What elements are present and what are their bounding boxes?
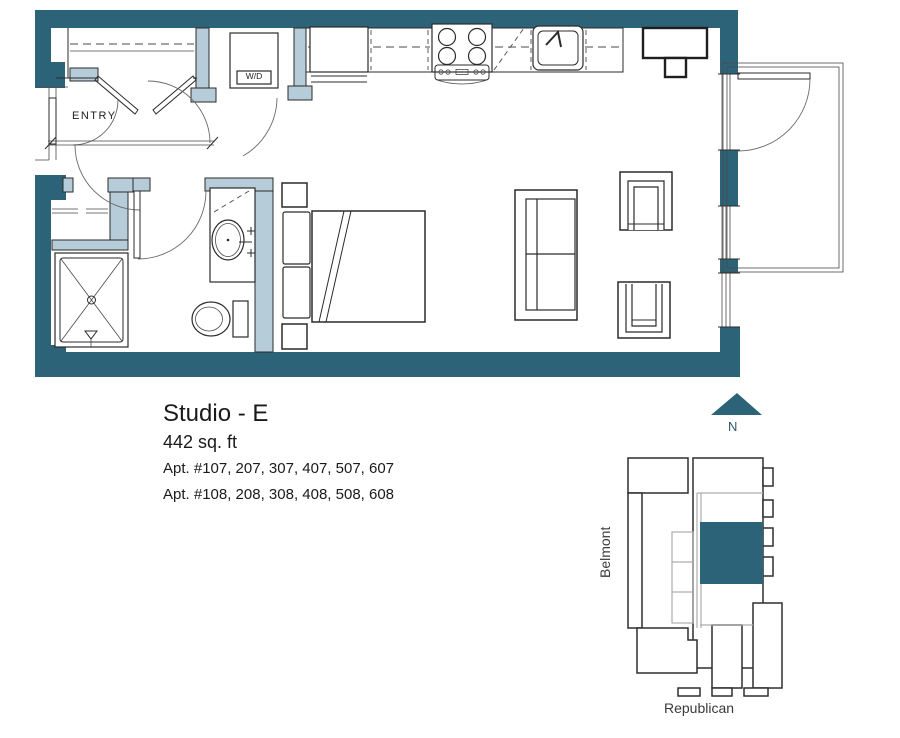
refrigerator: [310, 27, 368, 82]
north-arrow-icon: [711, 393, 762, 415]
north-label: N: [728, 419, 737, 434]
bathroom-door-leaf: [134, 191, 140, 258]
living-area: [515, 28, 707, 338]
wd-door-swing: [243, 98, 277, 156]
bed-area: [282, 183, 425, 349]
vanity-sink: [210, 188, 255, 282]
linen-closet: [52, 209, 108, 213]
bed-mattress: [312, 211, 425, 322]
stove: [432, 24, 492, 84]
north-arrow: [711, 393, 762, 415]
plan-title: Studio - E: [163, 400, 268, 428]
bathroom: [134, 188, 255, 337]
floor-plan-page: { "plan": { "title": "Studio - E", "area…: [0, 0, 900, 738]
dishwasher: [494, 28, 524, 70]
washer-dryer-label: W/D: [238, 71, 270, 81]
highlighted-unit: [700, 522, 763, 584]
plan-area: 442 sq. ft: [163, 432, 237, 453]
pillow: [283, 212, 310, 264]
floor-plan-svg: [0, 0, 900, 738]
bifold-door-left: [95, 76, 138, 114]
washer-dryer-closet: [230, 33, 278, 156]
table-with-stool: [643, 28, 707, 77]
apartment-numbers-1: Apt. #107, 207, 307, 407, 507, 607: [163, 460, 394, 477]
nightstand: [282, 324, 307, 349]
kitchen-sink: [533, 26, 583, 70]
balcony: [723, 63, 843, 272]
site-map: [628, 458, 782, 696]
sofa: [515, 190, 577, 320]
nightstand: [282, 183, 307, 207]
bathroom-door-swing: [138, 191, 206, 259]
balcony-door-swing: [738, 79, 810, 151]
entry-door-leaf: [49, 98, 56, 144]
balcony-door-leaf: [738, 73, 810, 79]
apartment-numbers-2: Apt. #108, 208, 308, 408, 508, 608: [163, 486, 394, 503]
entry-label: ENTRY: [72, 110, 117, 122]
shower: [55, 253, 128, 347]
toilet: [192, 301, 248, 337]
street-label-belmont: Belmont: [597, 527, 613, 578]
entry-door-swing: [73, 100, 118, 145]
kitchen: [306, 24, 623, 84]
armchair-top: [620, 172, 672, 230]
armchair-bottom: [618, 282, 670, 338]
pillow: [283, 267, 310, 318]
street-label-republican: Republican: [664, 700, 734, 716]
